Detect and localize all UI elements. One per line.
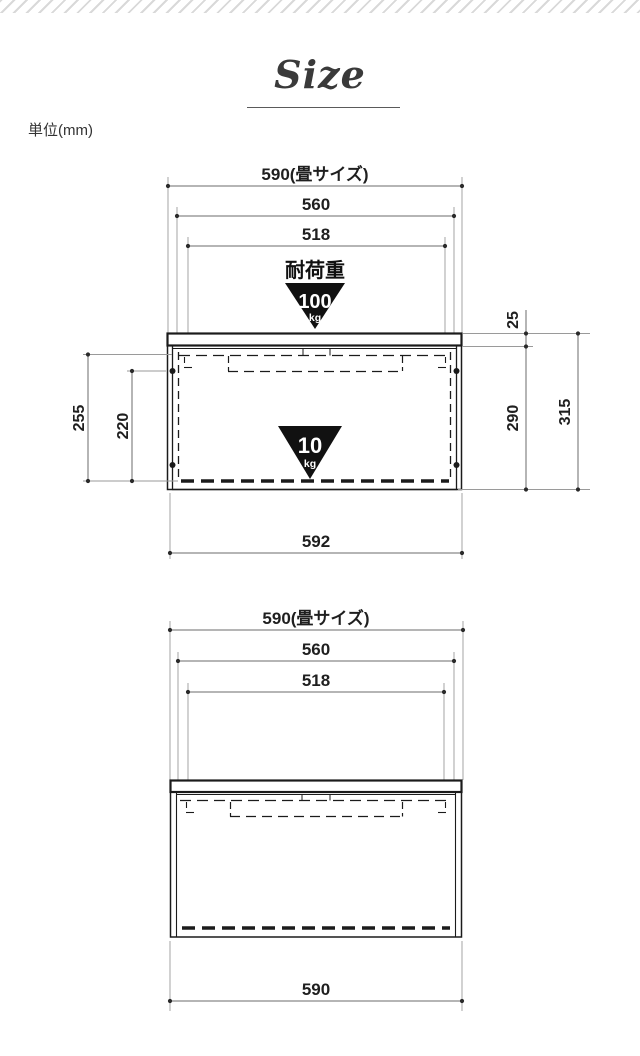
size-diagram-page: Size 単位(mm) 590(畳サイズ) (0, 0, 640, 1056)
dim-label-width-inner: 518 (302, 225, 330, 244)
cabinet-back-outline (171, 781, 462, 938)
screw-icon (170, 368, 176, 374)
dim-label-width-top: 590(畳サイズ) (261, 164, 368, 184)
load-capacity-100kg: 耐荷重 100 kg (285, 258, 345, 329)
front-bottom-width-dimension: 592 (168, 493, 464, 559)
top-panel (168, 334, 462, 346)
dimension-dot (460, 551, 464, 555)
dimension-dot (176, 659, 180, 663)
load-100-unit: kg (309, 312, 321, 324)
dim-label-left-outer: 255 (71, 405, 88, 432)
dimension-dot (166, 184, 170, 188)
screw-icon (454, 462, 460, 468)
back-view-diagram: 590(畳サイズ) 560 518 (168, 608, 465, 1011)
dimension-dot (168, 628, 172, 632)
dimension-dot (461, 628, 465, 632)
dimension-dot (524, 331, 528, 335)
dimension-dot (168, 551, 172, 555)
dim-label-body-height: 290 (505, 405, 522, 432)
dimension-dot (186, 690, 190, 694)
dim-label-width-top: 590(畳サイズ) (262, 608, 369, 628)
dim-label-width-mid: 560 (302, 640, 330, 659)
dim-label-width-mid: 560 (302, 195, 330, 214)
top-panel (171, 781, 462, 793)
dim-label-top-thickness: 25 (505, 311, 522, 329)
dimension-dot (442, 690, 446, 694)
dimension-dot (452, 214, 456, 218)
back-top-width-dimensions: 590(畳サイズ) 560 518 (168, 608, 465, 780)
dimension-dot (130, 479, 134, 483)
dim-label-width-bottom: 590 (302, 980, 330, 999)
dimension-dot (576, 487, 580, 491)
dim-label-width-bottom: 592 (302, 532, 330, 551)
dim-label-left-inner: 220 (115, 413, 132, 440)
dimension-dot (168, 999, 172, 1003)
dimension-dot (186, 244, 190, 248)
dimension-dot (524, 344, 528, 348)
dimension-dot (443, 244, 447, 248)
back-bottom-width-dimension: 590 (168, 941, 464, 1011)
dimension-dot (576, 331, 580, 335)
front-view-diagram: 590(畳サイズ) 560 518 耐荷重 100 kg (71, 164, 590, 559)
screw-icon (170, 462, 176, 468)
load-100-value: 100 (298, 291, 331, 313)
dimension-dot (86, 352, 90, 356)
dimension-drawings: 590(畳サイズ) 560 518 耐荷重 100 kg (0, 0, 640, 1056)
dimension-dot (452, 659, 456, 663)
load-10-value: 10 (298, 433, 322, 458)
outer-frame (171, 792, 462, 937)
load-capacity-heading: 耐荷重 (285, 258, 345, 282)
load-capacity-10kg: 10 kg (278, 426, 342, 479)
front-left-height-dimensions: 255 220 (71, 352, 178, 483)
load-10-unit: kg (304, 458, 316, 470)
front-right-height-dimensions: 25 290 315 (458, 310, 590, 492)
dim-label-total-height: 315 (557, 399, 574, 426)
dimension-dot (524, 487, 528, 491)
dimension-dot (460, 184, 464, 188)
dimension-dot (86, 479, 90, 483)
screw-icon (454, 368, 460, 374)
dimension-dot (130, 369, 134, 373)
dim-label-width-inner: 518 (302, 671, 330, 690)
dimension-dot (175, 214, 179, 218)
dimension-dot (460, 999, 464, 1003)
